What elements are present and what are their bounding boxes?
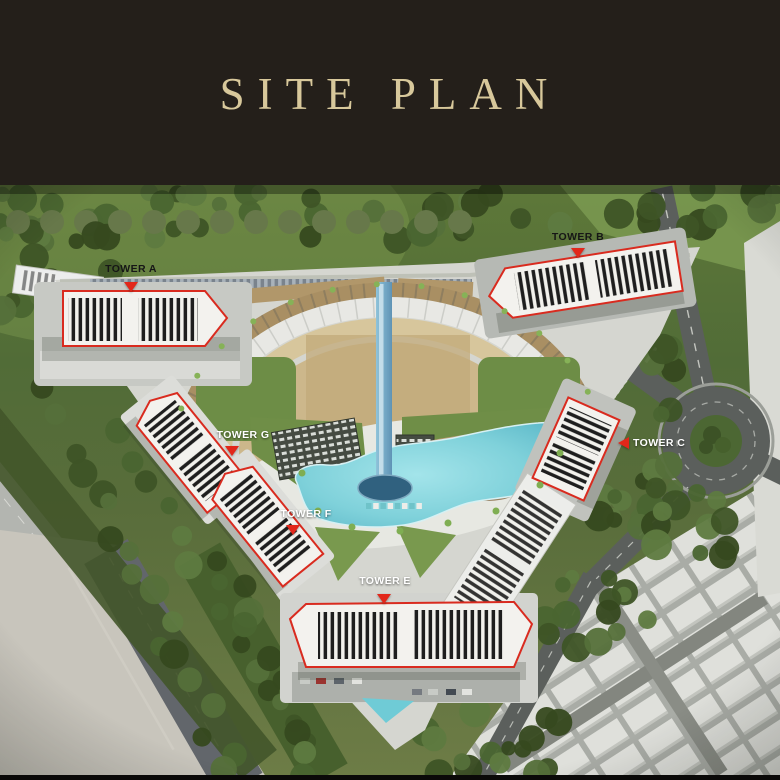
tower-g-label: TOWER G <box>205 429 281 441</box>
tower-c-marker-icon <box>618 437 629 449</box>
tower-g-marker-icon <box>225 446 239 456</box>
tower-a-label: TOWER A <box>93 263 169 275</box>
tower-b-marker-icon <box>571 248 585 258</box>
tower-e-label: TOWER E <box>347 575 423 587</box>
tower-b-label: TOWER B <box>540 231 616 243</box>
top-shadow <box>0 185 780 194</box>
tower-f-marker-icon <box>286 525 300 535</box>
tower-c-label: TOWER C <box>633 437 709 449</box>
tower-f-label: TOWER F <box>268 508 344 520</box>
page-header: SITE PLAN <box>0 0 780 185</box>
site-plan-page: SITE PLAN <box>0 0 780 780</box>
aerial-site-plan-image: TOWER A TOWER B TOWER C TOWER E TOWER F … <box>0 185 780 775</box>
bottom-border <box>0 775 780 780</box>
tower-e-marker-icon <box>377 594 391 604</box>
page-title: SITE PLAN <box>0 68 780 120</box>
tower-a-marker-icon <box>124 282 138 292</box>
